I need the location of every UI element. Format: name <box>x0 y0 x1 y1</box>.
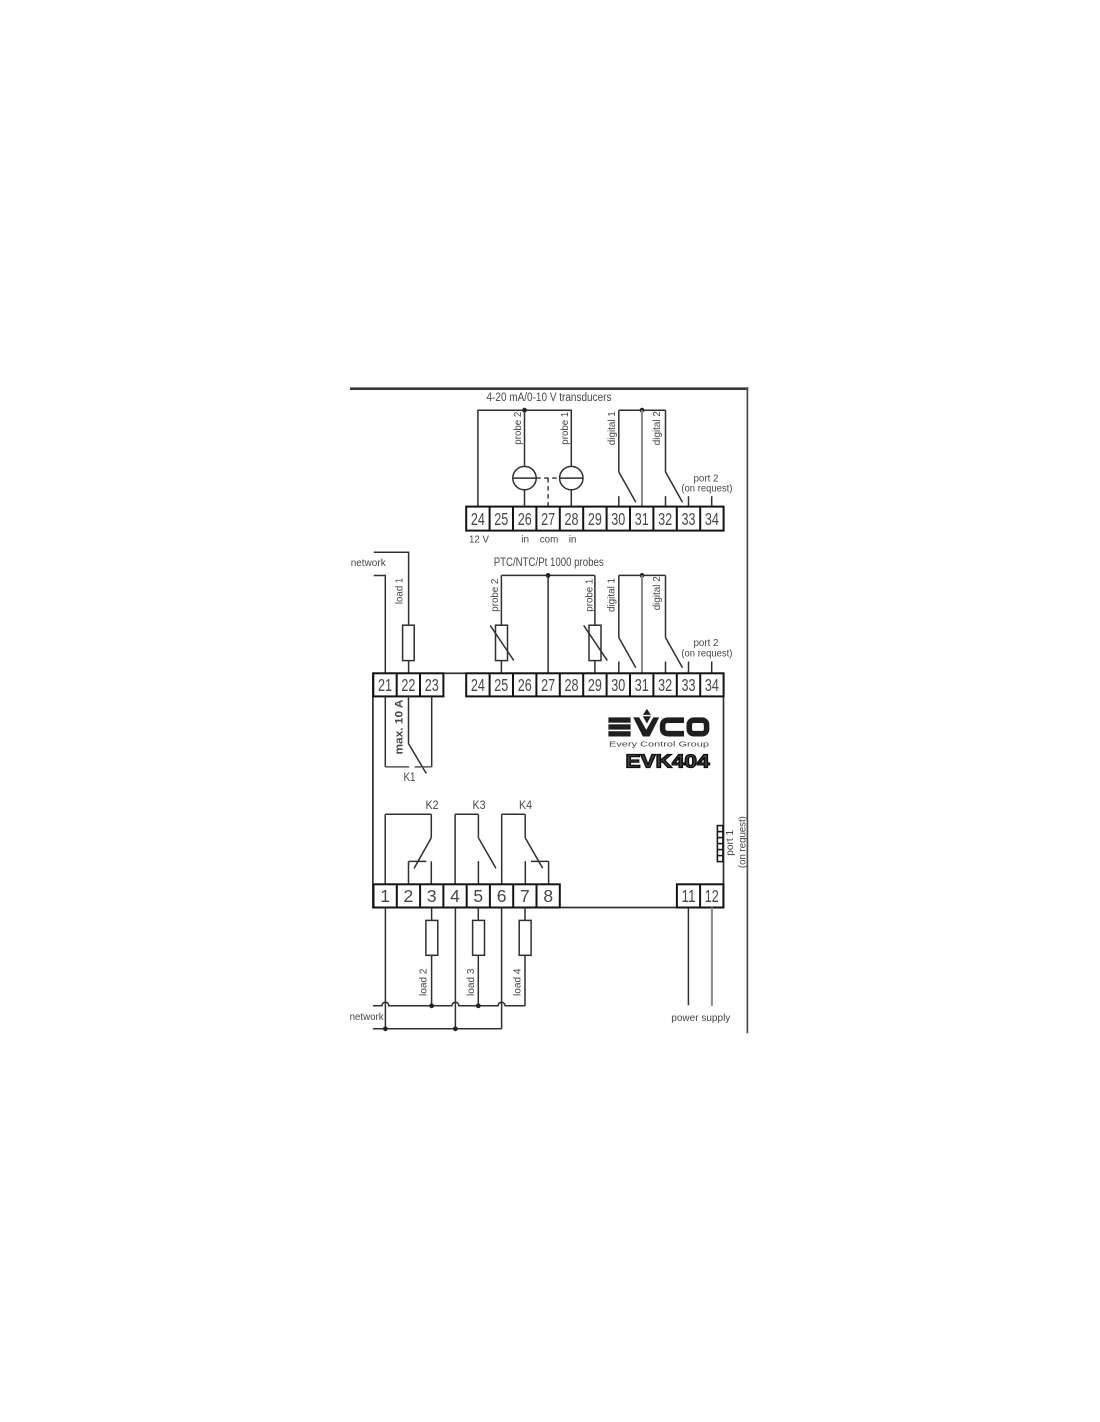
svg-text:24: 24 <box>471 675 485 695</box>
svg-text:12 V: 12 V <box>469 535 489 546</box>
svg-text:com: com <box>540 535 559 546</box>
svg-text:power supply: power supply <box>671 1013 730 1024</box>
svg-text:28: 28 <box>565 675 579 695</box>
svg-text:23: 23 <box>425 675 439 695</box>
svg-text:(on request): (on request) <box>681 484 732 495</box>
svg-text:K1: K1 <box>404 770 416 784</box>
svg-text:33: 33 <box>682 509 696 529</box>
svg-text:load 1: load 1 <box>394 577 405 604</box>
svg-text:digital 2: digital 2 <box>652 576 663 610</box>
svg-text:1: 1 <box>380 886 390 906</box>
svg-text:3: 3 <box>427 886 437 906</box>
svg-text:33: 33 <box>682 675 696 695</box>
svg-text:28: 28 <box>565 509 579 529</box>
svg-text:K2: K2 <box>426 798 439 812</box>
svg-text:26: 26 <box>518 675 532 695</box>
svg-text:network: network <box>351 558 387 569</box>
svg-text:max. 10 A: max. 10 A <box>394 699 406 754</box>
svg-text:probe 1: probe 1 <box>584 578 595 611</box>
svg-text:load 2: load 2 <box>419 968 430 996</box>
svg-text:digital 2: digital 2 <box>652 411 663 445</box>
svg-text:4-20 mA/0-10 V transducers: 4-20 mA/0-10 V transducers <box>487 392 612 404</box>
svg-text:32: 32 <box>658 509 672 529</box>
svg-text:30: 30 <box>611 675 625 695</box>
svg-text:22: 22 <box>401 675 415 695</box>
svg-text:K4: K4 <box>519 798 532 812</box>
svg-text:probe 2: probe 2 <box>490 578 501 611</box>
svg-text:digital 1: digital 1 <box>607 411 618 445</box>
svg-text:25: 25 <box>494 509 508 529</box>
svg-text:probe 1: probe 1 <box>560 411 571 444</box>
svg-text:12: 12 <box>705 886 719 906</box>
svg-text:5: 5 <box>473 886 483 906</box>
svg-text:probe 2: probe 2 <box>513 411 524 444</box>
svg-text:26: 26 <box>518 509 532 529</box>
svg-text:7: 7 <box>520 886 530 906</box>
svg-text:8: 8 <box>543 886 553 906</box>
svg-text:load 3: load 3 <box>466 968 477 996</box>
svg-text:11: 11 <box>682 886 696 906</box>
svg-text:6: 6 <box>497 886 507 906</box>
svg-text:29: 29 <box>588 509 602 529</box>
svg-text:29: 29 <box>588 675 602 695</box>
svg-text:24: 24 <box>471 509 485 529</box>
svg-text:27: 27 <box>541 509 555 529</box>
svg-text:digital 1: digital 1 <box>607 578 618 612</box>
svg-text:EVK404: EVK404 <box>626 750 711 771</box>
svg-text:2: 2 <box>404 886 414 906</box>
svg-text:27: 27 <box>541 675 555 695</box>
svg-text:in: in <box>521 535 529 546</box>
svg-text:32: 32 <box>658 675 672 695</box>
svg-text:port 1: port 1 <box>725 829 736 855</box>
svg-text:Every Control Group: Every Control Group <box>609 740 709 749</box>
svg-text:34: 34 <box>705 675 719 695</box>
svg-text:(on request): (on request) <box>738 816 749 868</box>
svg-text:PTC/NTC/Pt 1000 probes: PTC/NTC/Pt 1000 probes <box>494 557 604 569</box>
svg-text:4: 4 <box>450 886 460 906</box>
svg-text:31: 31 <box>635 509 649 529</box>
svg-text:(on request): (on request) <box>681 648 732 659</box>
svg-text:network: network <box>350 1012 385 1023</box>
svg-text:30: 30 <box>611 509 625 529</box>
svg-text:25: 25 <box>494 675 508 695</box>
svg-text:in: in <box>569 535 577 546</box>
svg-text:K3: K3 <box>473 798 486 812</box>
svg-text:21: 21 <box>378 675 392 695</box>
svg-text:31: 31 <box>635 675 649 695</box>
svg-text:34: 34 <box>705 509 719 529</box>
svg-text:load 4: load 4 <box>512 968 523 996</box>
